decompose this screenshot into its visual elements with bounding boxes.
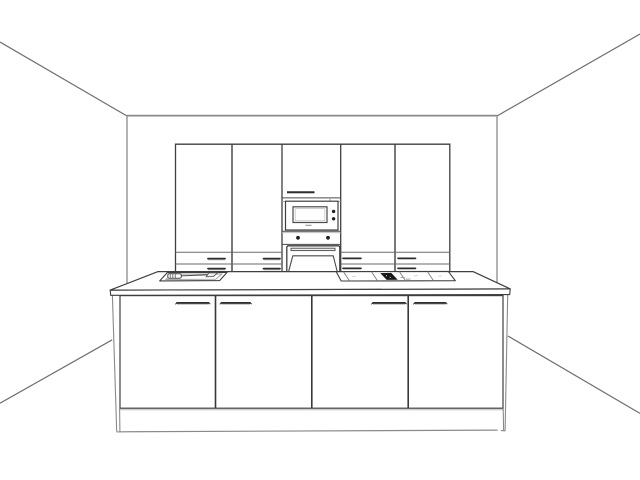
microwave-knob <box>332 217 335 220</box>
kitchen-3d-viewport[interactable] <box>0 0 640 480</box>
oven[interactable] <box>287 246 340 275</box>
island-right-edge <box>505 295 508 431</box>
cooktop-control-dot <box>386 275 387 276</box>
microwave-knob <box>332 210 335 213</box>
island-plinth-bottom <box>121 430 498 432</box>
oven-handle <box>291 248 335 250</box>
oven-knob <box>326 236 330 240</box>
oven-knob <box>296 236 300 240</box>
ceiling-edge-right <box>497 34 640 116</box>
ceiling-edge-left <box>0 42 127 116</box>
microwave-window <box>293 207 327 223</box>
island-right-foot <box>501 430 505 431</box>
sink[interactable] <box>160 272 228 281</box>
kitchen-island[interactable] <box>110 271 510 432</box>
cooktop-control-dot <box>390 277 391 278</box>
kitchen-render-canvas <box>0 0 640 480</box>
faucet-body <box>168 274 182 279</box>
floor-edge-left <box>0 340 112 403</box>
floor-edge-right <box>508 336 640 413</box>
cooktop[interactable] <box>336 271 455 281</box>
microwave[interactable] <box>286 201 339 230</box>
oven-glass <box>288 256 337 273</box>
island-left-edge <box>112 295 116 431</box>
